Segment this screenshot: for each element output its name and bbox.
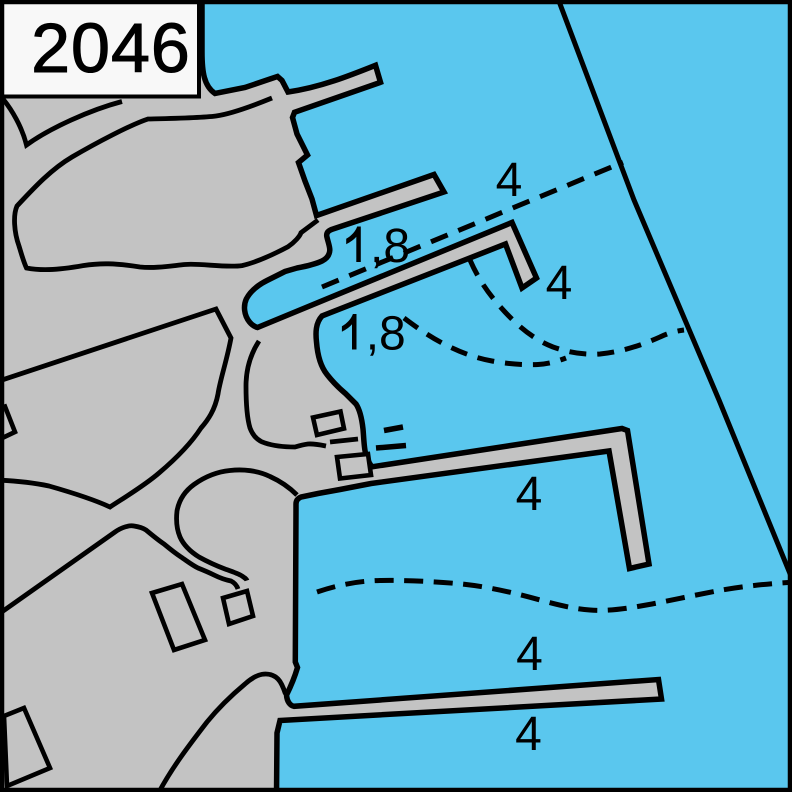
svg-text:2046: 2046 (31, 9, 191, 87)
svg-text:4: 4 (496, 154, 523, 207)
svg-text:4: 4 (516, 628, 543, 681)
svg-text:,8: ,8 (370, 220, 410, 273)
svg-text:4: 4 (515, 708, 542, 761)
svg-text:4: 4 (546, 257, 573, 310)
svg-text:4: 4 (516, 468, 543, 521)
svg-text:,8: ,8 (366, 308, 406, 361)
